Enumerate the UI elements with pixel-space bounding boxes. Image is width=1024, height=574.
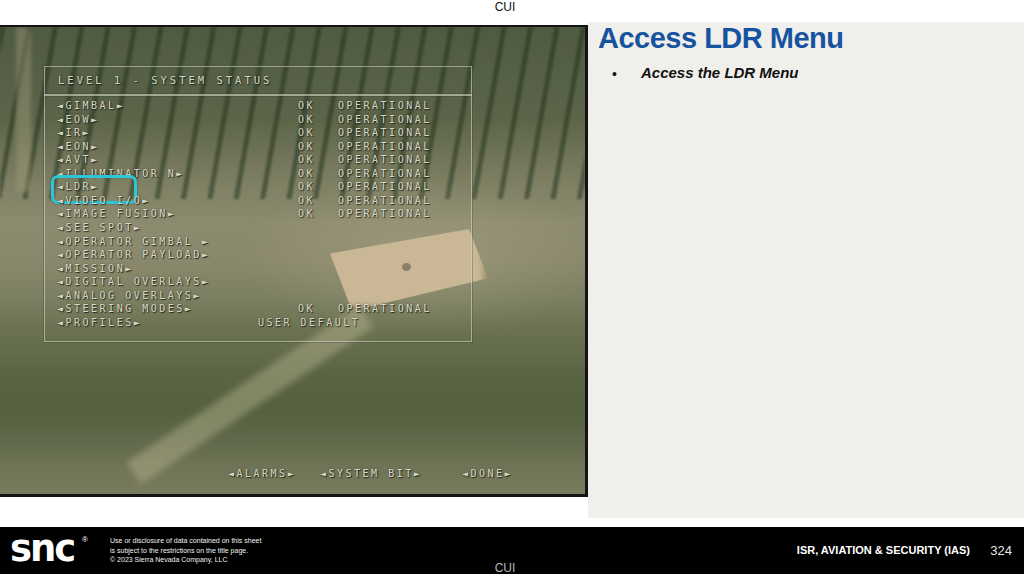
osd-item-ok: OK <box>298 127 315 138</box>
osd-item-status: OPERATIONAL <box>338 127 432 138</box>
osd-item-status: OPERATIONAL <box>338 303 432 314</box>
section-label: ISR, AVIATION & SECURITY (IAS) <box>797 544 970 556</box>
osd-item-label: ◄LDR► <box>57 181 100 192</box>
osd-item-label: ◄IR► <box>57 127 91 138</box>
osd-item-label: ◄EOW► <box>57 114 100 125</box>
osd-item-status: OPERATIONAL <box>338 114 432 125</box>
osd-action-done[interactable]: ◄DONE► <box>462 468 513 479</box>
osd-menu-item[interactable]: ◄DIGITAL OVERLAYS► <box>44 276 470 290</box>
osd-item-label: ◄OPERATOR PAYLOAD► <box>57 249 210 260</box>
bullet-marker: • <box>612 66 617 82</box>
osd-item-value: USER DEFAULT <box>258 317 360 328</box>
slide-panel: Access LDR Menu • Access the LDR Menu <box>588 22 1024 518</box>
osd-menu-item[interactable]: ◄PROFILES►USER DEFAULT <box>44 317 470 331</box>
osd-item-ok: OK <box>298 141 315 152</box>
osd-item-ok: OK <box>298 195 315 206</box>
osd-menu-title: LEVEL 1 - SYSTEM STATUS <box>58 74 272 86</box>
osd-item-label: ◄ANALOG OVERLAYS► <box>57 290 202 301</box>
osd-action-system-bit[interactable]: ◄SYSTEM BIT► <box>320 468 422 479</box>
osd-menu-item[interactable]: ◄MISSION► <box>44 263 470 277</box>
osd-title-box: LEVEL 1 - SYSTEM STATUS <box>44 66 472 96</box>
bullet-text: Access the LDR Menu <box>641 64 799 81</box>
disclaimer-line: is subject to the restrictions on the ti… <box>110 546 261 556</box>
osd-menu-item[interactable]: ◄IMAGE FUSION►OKOPERATIONAL <box>44 208 470 222</box>
footer-bar: snc ® Use or disclosure of data containe… <box>0 527 1024 574</box>
osd-item-label: ◄OPERATOR GIMBAL ► <box>57 236 210 247</box>
registered-mark: ® <box>82 535 88 544</box>
osd-item-label: ◄GIMBAL► <box>57 100 125 111</box>
osd-item-label: ◄AVT► <box>57 154 100 165</box>
osd-menu-items: ◄GIMBAL►OKOPERATIONAL◄EOW►OKOPERATIONAL◄… <box>44 100 470 350</box>
osd-item-ok: OK <box>298 114 315 125</box>
dirt-road <box>16 27 31 192</box>
osd-item-status: OPERATIONAL <box>338 181 432 192</box>
osd-item-ok: OK <box>298 100 315 111</box>
osd-item-ok: OK <box>298 168 315 179</box>
disclaimer-line: Use or disclosure of data contained on t… <box>110 536 261 546</box>
osd-item-status: OPERATIONAL <box>338 154 432 165</box>
osd-action-bar: ◄ALARMS►◄SYSTEM BIT►◄DONE► <box>0 468 585 484</box>
osd-menu-item[interactable]: ◄OPERATOR PAYLOAD► <box>44 249 470 263</box>
osd-item-ok: OK <box>298 154 315 165</box>
sensor-video-frame: LEVEL 1 - SYSTEM STATUS ◄GIMBAL►OKOPERAT… <box>0 25 588 497</box>
osd-menu-item[interactable]: ◄OPERATOR GIMBAL ► <box>44 236 470 250</box>
osd-menu-item[interactable]: ◄VIDEO I/O►OKOPERATIONAL <box>44 195 470 209</box>
osd-item-label: ◄MISSION► <box>57 263 134 274</box>
osd-item-status: OPERATIONAL <box>338 208 432 219</box>
osd-item-ok: OK <box>298 303 315 314</box>
osd-item-label: ◄VIDEO I/O► <box>57 195 151 206</box>
osd-item-ok: OK <box>298 181 315 192</box>
osd-menu-item[interactable]: ◄STEERING MODES►OKOPERATIONAL <box>44 303 470 317</box>
osd-item-label: ◄IMAGE FUSION► <box>57 208 176 219</box>
cui-banner-top: CUI <box>0 0 1010 14</box>
osd-item-label: ◄SEE SPOT► <box>57 222 142 233</box>
osd-action-alarms[interactable]: ◄ALARMS► <box>228 468 296 479</box>
osd-item-ok: OK <box>298 208 315 219</box>
osd-menu-item[interactable]: ◄GIMBAL►OKOPERATIONAL <box>44 100 470 114</box>
cui-banner-bottom: CUI <box>0 561 1010 574</box>
osd-menu-item[interactable]: ◄LDR►OKOPERATIONAL <box>44 181 470 195</box>
osd-menu-item[interactable]: ◄ANALOG OVERLAYS► <box>44 290 470 304</box>
osd-menu-item[interactable]: ◄SEE SPOT► <box>44 222 470 236</box>
osd-item-status: OPERATIONAL <box>338 195 432 206</box>
osd-menu-item[interactable]: ◄AVT►OKOPERATIONAL <box>44 154 470 168</box>
osd-item-label: ◄DIGITAL OVERLAYS► <box>57 276 210 287</box>
osd-menu-item[interactable]: ◄EON►OKOPERATIONAL <box>44 141 470 155</box>
osd-item-label: ◄EON► <box>57 141 100 152</box>
osd-menu-item[interactable]: ◄EOW►OKOPERATIONAL <box>44 114 470 128</box>
osd-menu-item[interactable]: ◄IR►OKOPERATIONAL <box>44 127 470 141</box>
page-number: 324 <box>990 543 1012 558</box>
osd-item-status: OPERATIONAL <box>338 168 432 179</box>
osd-item-status: OPERATIONAL <box>338 100 432 111</box>
osd-item-label: ◄PROFILES► <box>57 317 142 328</box>
osd-item-status: OPERATIONAL <box>338 141 432 152</box>
page-title: Access LDR Menu <box>598 22 844 55</box>
osd-item-label: ◄STEERING MODES► <box>57 303 193 314</box>
